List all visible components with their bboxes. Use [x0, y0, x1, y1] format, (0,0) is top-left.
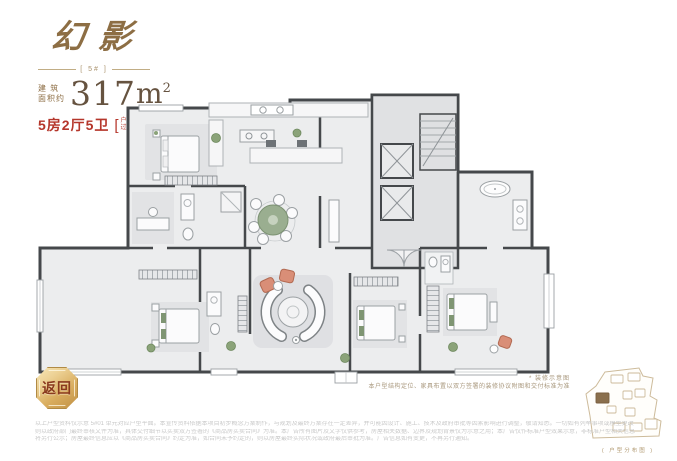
back-button-inner: 返回 [39, 370, 75, 406]
wardrobe [165, 176, 217, 185]
bathroom-master [425, 252, 453, 284]
disclaimer: 以上户型资料仅示意 5#01 单元对应户型平面。本宣传资料依据本项目初步概念方案… [35, 421, 647, 444]
tall-cabinet [238, 296, 247, 332]
wardrobe [354, 277, 398, 286]
side-table [490, 345, 498, 353]
back-button-label: 返回 [42, 378, 72, 398]
floor-plan-drawing [35, 88, 560, 385]
divider-line-right [112, 69, 150, 70]
staircase [420, 114, 456, 170]
site-building-highlight [596, 393, 609, 403]
site-map-caption: ( 户型分布图 ) [583, 446, 673, 454]
unit-divider: [ 5# ] [38, 66, 150, 73]
decor-note-body: 本户型结构定位、家具布置以双方签署的装修协议附图和交付标准为准 [270, 383, 570, 391]
disclaimer-line-3: 将另行公示；房屋最终信息应以《商品房买卖合同》约定为准，如合同未予约定的，则以房… [35, 436, 647, 444]
floor-plan [35, 88, 560, 385]
back-button[interactable]: 返回 [36, 367, 78, 409]
elevator-core [372, 95, 458, 268]
wardrobe [139, 270, 197, 279]
wardrobe [427, 286, 439, 332]
divider-line-left [38, 69, 76, 70]
disclaimer-line-1: 以上户型资料仅示意 5#01 单元对应户型平面。本宣传资料依据本项目初步概念方案… [35, 421, 647, 429]
disclaimer-line-2: 则以政府部门最终审核文件为准，具体交付细节以买卖双方签署的《商品房买卖合同》为准… [35, 429, 647, 437]
project-title: 幻影 [33, 10, 188, 58]
side-table [274, 282, 283, 291]
study-nook [132, 192, 174, 244]
unit-label: [ 5# ] [76, 66, 112, 73]
decor-note-title: * 装修示意图 [270, 375, 570, 383]
living-room [253, 269, 333, 348]
decor-note: * 装修示意图 本户型结构定位、家具布置以双方签署的装修协议附图和交付标准为准 [270, 375, 570, 391]
island-counter [250, 148, 342, 163]
coffee-table [278, 297, 308, 327]
armchair-coral [279, 269, 295, 284]
bedroom-top-left [145, 124, 217, 185]
page: 幻影 [ 5# ] 建 筑 面积约 317 m 2 5房2厅5卫 [ 户型方案 … [0, 0, 677, 461]
